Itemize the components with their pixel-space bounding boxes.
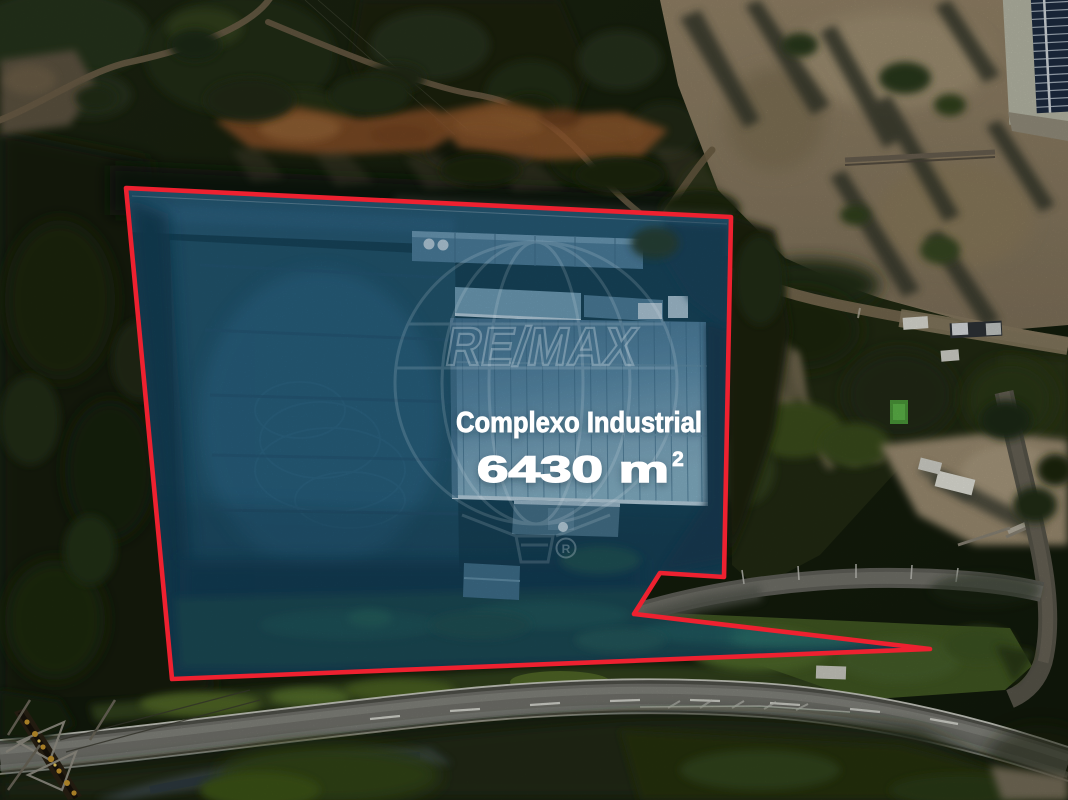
svg-text:2: 2 <box>672 448 684 471</box>
svg-text:RE/MAX: RE/MAX <box>442 316 643 377</box>
svg-text:R: R <box>562 542 571 556</box>
svg-text:6430 m: 6430 m <box>477 449 669 490</box>
svg-text:Complexo Industrial: Complexo Industrial <box>456 407 702 439</box>
